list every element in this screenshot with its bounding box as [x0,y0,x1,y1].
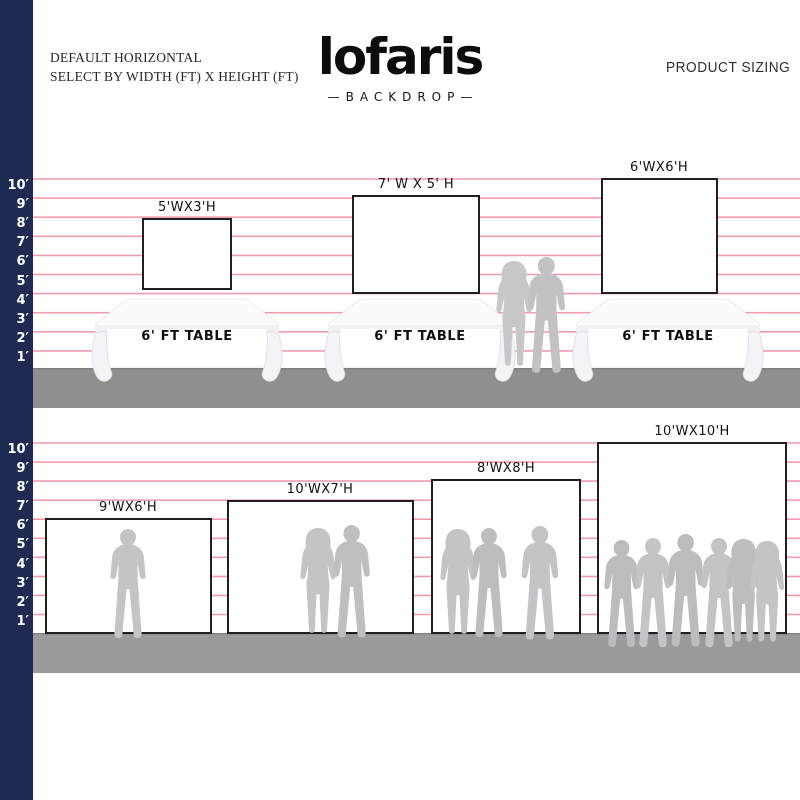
backdrop-5x3 [143,219,231,289]
brand-sub-label: —BACKDROP— [328,90,479,104]
header-line-1: DEFAULT HORIZONTAL [50,50,202,66]
ruler-tick-label: 3′ [0,577,29,590]
header-line-2: SELECT BY WIDTH (FT) X HEIGHT (FT) [50,69,299,85]
ruler-tick-label: 9′ [0,198,29,211]
ruler-tick-label: 6′ [0,519,29,532]
ruler-tick-label: 8′ [0,217,29,230]
ruler-tick-label: 10′ [0,179,29,192]
floor-bottom-section [33,633,800,673]
ruler-tick-label: 2′ [0,332,29,345]
diagram-canvas [0,0,800,800]
backdrop-label-6x6: 6'WX6'H [630,160,688,175]
product-sizing-chart: DEFAULT HORIZONTAL SELECT BY WIDTH (FT) … [0,0,800,800]
ruler-tick-label: 2′ [0,596,29,609]
backdrop-label-8x8: 8'WX8'H [477,461,535,476]
ruler-tick-label: 9′ [0,462,29,475]
ruler-tick-label: 4′ [0,558,29,571]
floor-top-section [33,368,800,408]
ruler-tick-label: 1′ [0,615,29,628]
product-sizing-title: PRODUCT SIZING [666,60,790,76]
backdrop-label-7x5: 7' W X 5' H [378,177,454,192]
backdrop-label-5x3: 5'WX3'H [158,200,216,215]
ruler-tick-label: 7′ [0,236,29,249]
backdrop-label-10x7: 10'WX7'H [287,482,354,497]
table-3-label: 6' FT TABLE [622,329,713,344]
ruler-tick-label: 6′ [0,255,29,268]
ruler-bar [0,0,33,800]
backdrop-label-10x10: 10'WX10'H [654,424,729,439]
ruler-tick-label: 7′ [0,500,29,513]
backdrop-7x5 [353,196,479,293]
backdrops-row1 [143,179,717,293]
backdrop-label-9x6: 9'WX6'H [99,500,157,515]
backdrop-6x6 [602,179,717,293]
ruler-tick-label: 5′ [0,275,29,288]
brand-logo: lofaris [318,28,483,86]
ruler-tick-label: 4′ [0,294,29,307]
ruler-tick-label: 10′ [0,443,29,456]
ruler-tick-label: 1′ [0,351,29,364]
table-1-label: 6' FT TABLE [141,329,232,344]
ruler-tick-label: 3′ [0,313,29,326]
table-2-label: 6' FT TABLE [374,329,465,344]
ruler-tick-label: 5′ [0,538,29,551]
ruler-tick-label: 8′ [0,481,29,494]
